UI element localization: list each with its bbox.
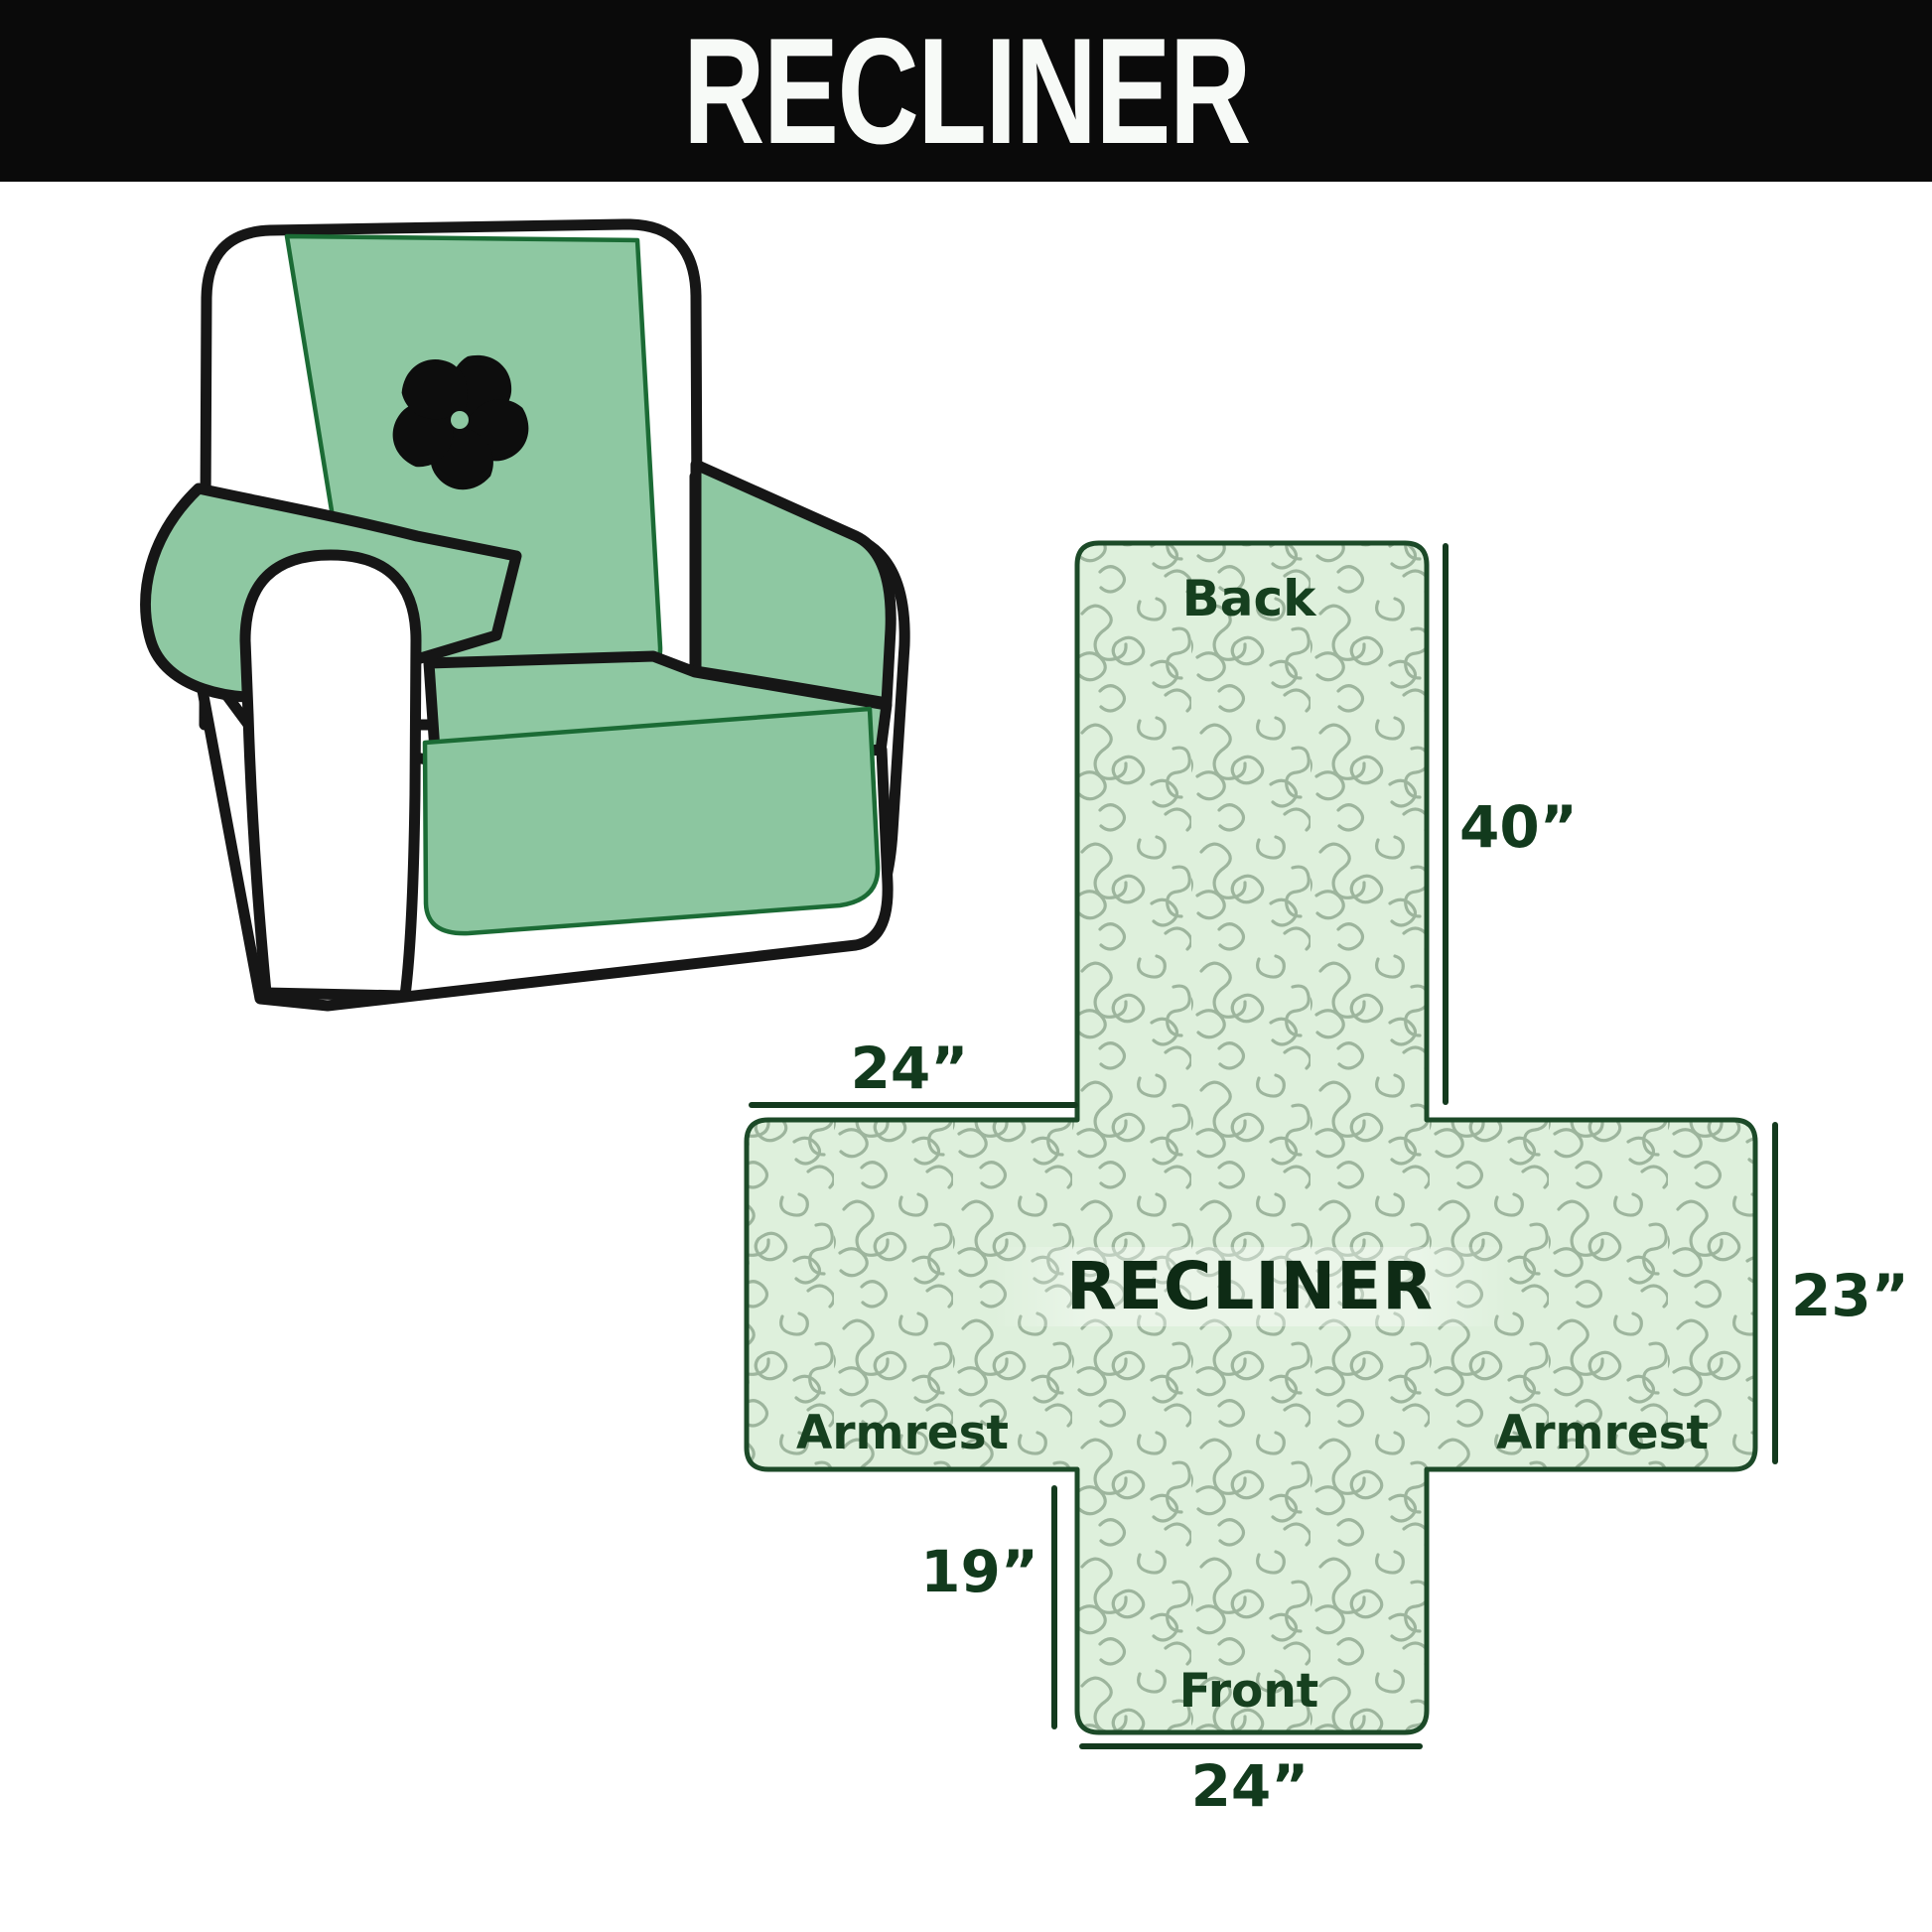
armrest-left-label: Armrest [796,1406,1009,1460]
dim-side-height: 23” [1775,1125,1909,1461]
dim-front-drop: 19” [920,1488,1054,1726]
front-section-label: Front [1179,1664,1319,1719]
dim-front-drop-text: 19” [920,1538,1038,1605]
cover-right-arm-panel [696,465,891,703]
chair-illustration [146,224,905,1006]
chair-left-arm-front [245,555,416,996]
dim-bottom-width: 24” [1082,1746,1420,1820]
dim-back-height-text: 40” [1459,793,1578,861]
center-recliner-label: RECLINER [1066,1248,1434,1324]
scene-canvas: Back RECLINER Armrest Armrest Front 40” … [0,0,1932,1932]
dim-top-width-text: 24” [851,1035,969,1102]
page: { "header": { "title": "RECLINER" }, "di… [0,0,1932,1932]
armrest-right-label: Armrest [1496,1406,1709,1460]
back-section-label: Back [1182,570,1317,627]
dim-back-height: 40” [1446,546,1578,1102]
dim-top-width: 24” [752,1035,1075,1105]
dim-side-height-text: 23” [1791,1262,1909,1329]
cover-layout-diagram: Back RECLINER Armrest Armrest Front 40” … [747,543,1909,1820]
pinwheel-center-dot [451,411,469,429]
dim-bottom-width-text: 24” [1191,1752,1310,1820]
cover-front-panel [425,709,878,933]
